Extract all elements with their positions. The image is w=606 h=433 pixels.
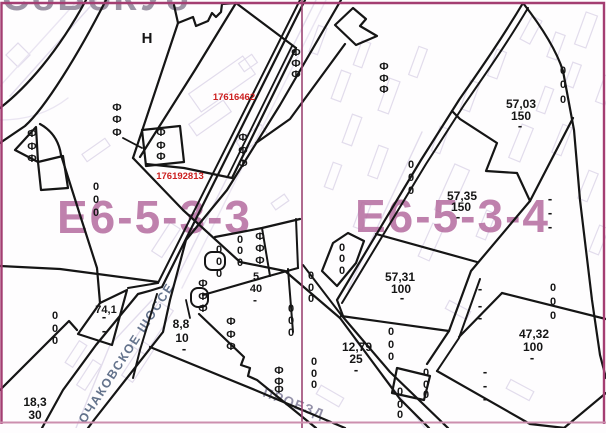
svg-text:-: - [548, 219, 552, 234]
svg-text:-: - [182, 341, 186, 356]
svg-text:0: 0 [288, 327, 294, 339]
svg-text:0: 0 [560, 65, 566, 77]
svg-text:0: 0 [311, 379, 317, 391]
svg-text:Ф: Ф [255, 255, 264, 267]
svg-text:0: 0 [423, 389, 429, 401]
svg-text:0: 0 [388, 339, 394, 351]
svg-text:-: - [548, 205, 552, 220]
svg-text:Ф: Ф [238, 145, 247, 157]
svg-text:Ф: Ф [112, 114, 121, 126]
svg-text:0: 0 [408, 185, 414, 197]
svg-text:0: 0 [311, 356, 317, 368]
svg-text:5: 5 [253, 271, 259, 283]
svg-text:-: - [253, 293, 257, 307]
svg-text:0: 0 [237, 245, 243, 257]
svg-text:0: 0 [339, 265, 345, 277]
svg-text:Ф: Ф [255, 243, 264, 255]
svg-text:0: 0 [216, 244, 222, 256]
svg-text:Ф: Ф [27, 141, 36, 153]
svg-text:0: 0 [308, 293, 314, 305]
svg-text:Ф: Ф [27, 153, 36, 165]
svg-text:0: 0 [397, 386, 403, 398]
svg-text:Ф: Ф [226, 329, 235, 341]
svg-text:-: - [518, 118, 522, 133]
svg-text:-: - [483, 391, 487, 406]
svg-text:176192813: 176192813 [156, 171, 204, 182]
svg-text:-: - [354, 362, 358, 377]
svg-text:Ф: Ф [226, 316, 235, 328]
svg-text:Ф: Ф [156, 151, 165, 163]
svg-text:30: 30 [28, 408, 42, 422]
svg-text:Ф: Ф [112, 102, 121, 114]
svg-text:Ф: Ф [238, 132, 247, 144]
svg-text:0: 0 [560, 94, 566, 106]
svg-text:47,32: 47,32 [519, 327, 549, 341]
svg-text:Ф: Ф [112, 127, 121, 139]
svg-text:Н: Н [142, 30, 153, 47]
svg-text:0: 0 [550, 310, 556, 322]
svg-text:-: - [548, 191, 552, 206]
svg-text:0: 0 [93, 181, 99, 193]
svg-text:0: 0 [52, 310, 58, 322]
svg-text:Ф: Ф [27, 128, 36, 140]
svg-text:0: 0 [550, 296, 556, 308]
svg-text:0: 0 [550, 282, 556, 294]
svg-text:Ф: Ф [198, 291, 207, 303]
svg-text:Ф: Ф [198, 278, 207, 290]
svg-text:Ф: Ф [198, 303, 207, 315]
svg-text:0: 0 [52, 335, 58, 347]
svg-text:0: 0 [423, 367, 429, 379]
svg-text:0: 0 [339, 253, 345, 265]
svg-text:-: - [478, 310, 482, 325]
svg-text:18,3: 18,3 [23, 395, 47, 409]
svg-text:17616462: 17616462 [213, 92, 255, 103]
svg-text:-: - [478, 281, 482, 296]
svg-text:0: 0 [216, 268, 222, 280]
svg-text:Ф: Ф [291, 69, 300, 81]
svg-text:-: - [400, 290, 404, 305]
svg-text:Ф: Ф [379, 61, 388, 73]
svg-text:0: 0 [408, 159, 414, 171]
svg-text:0: 0 [560, 79, 566, 91]
svg-text:0: 0 [388, 326, 394, 338]
svg-text:-: - [102, 323, 106, 338]
svg-text:Ф: Ф [238, 158, 247, 170]
svg-text:0: 0 [397, 409, 403, 421]
svg-text:0: 0 [308, 270, 314, 282]
svg-text:-: - [456, 209, 460, 224]
svg-text:Ф: Ф [156, 127, 165, 139]
svg-text:0: 0 [408, 172, 414, 184]
svg-text:0: 0 [216, 256, 222, 268]
svg-text:Ф: Ф [226, 341, 235, 353]
svg-text:0: 0 [93, 207, 99, 219]
svg-text:Ф: Ф [274, 384, 283, 396]
svg-text:74,1: 74,1 [95, 304, 116, 316]
svg-text:0: 0 [237, 257, 243, 269]
svg-text:8,8: 8,8 [173, 317, 190, 331]
svg-text:-: - [483, 364, 487, 379]
svg-text:Ф: Ф [379, 84, 388, 96]
svg-text:0: 0 [93, 194, 99, 206]
svg-text:0: 0 [52, 323, 58, 335]
svg-text:0: 0 [288, 303, 294, 315]
svg-text:0: 0 [288, 315, 294, 327]
svg-text:0: 0 [388, 351, 394, 363]
svg-text:150: 150 [451, 200, 471, 214]
svg-text:-: - [530, 350, 534, 365]
svg-text:Ф: Ф [255, 231, 264, 243]
